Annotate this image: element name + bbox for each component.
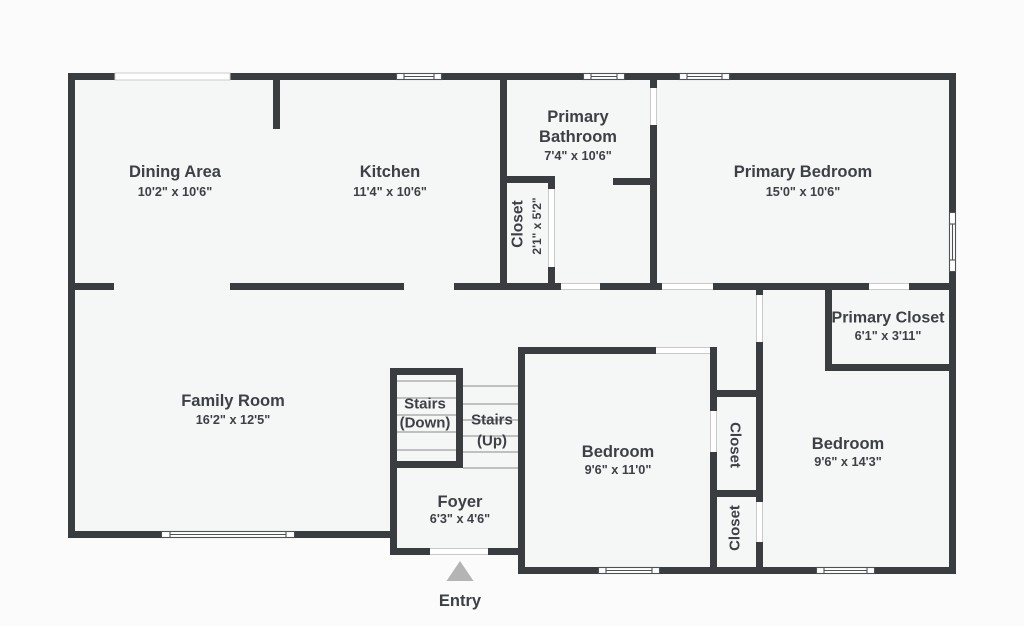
svg-text:6'1" x 3'11": 6'1" x 3'11"	[855, 329, 922, 343]
svg-text:Foyer: Foyer	[438, 493, 484, 511]
svg-text:Closet: Closet	[727, 505, 744, 551]
svg-text:Bedroom: Bedroom	[812, 435, 884, 453]
svg-text:16'2" x 12'5": 16'2" x 12'5"	[196, 413, 271, 427]
svg-text:Kitchen: Kitchen	[360, 163, 421, 181]
svg-text:Stairs: Stairs	[471, 412, 513, 429]
svg-text:15'0" x 10'6": 15'0" x 10'6"	[766, 185, 841, 199]
svg-text:9'6" x 11'0": 9'6" x 11'0"	[585, 463, 652, 477]
svg-text:9'6" x 14'3": 9'6" x 14'3"	[814, 455, 881, 469]
svg-text:(Up): (Up)	[477, 433, 507, 450]
svg-text:Entry: Entry	[439, 592, 482, 610]
svg-text:Bathroom: Bathroom	[539, 128, 617, 146]
svg-text:10'2" x 10'6": 10'2" x 10'6"	[138, 185, 213, 199]
svg-text:11'4" x 10'6": 11'4" x 10'6"	[353, 185, 427, 199]
svg-text:Family Room: Family Room	[181, 392, 285, 410]
svg-text:7'4" x 10'6": 7'4" x 10'6"	[544, 149, 611, 163]
svg-text:Stairs: Stairs	[404, 396, 446, 413]
svg-text:Primary: Primary	[547, 108, 609, 126]
svg-text:6'3" x 4'6": 6'3" x 4'6"	[430, 512, 490, 526]
svg-text:Bedroom: Bedroom	[582, 443, 654, 461]
svg-text:(Down): (Down)	[400, 415, 451, 432]
svg-text:Closet: Closet	[727, 422, 744, 468]
svg-text:Primary Bedroom: Primary Bedroom	[734, 163, 872, 181]
svg-text:Dining Area: Dining Area	[129, 163, 222, 181]
svg-text:2'1" x 5'2": 2'1" x 5'2"	[530, 197, 544, 254]
svg-text:Primary Closet: Primary Closet	[832, 310, 946, 327]
svg-text:Closet: Closet	[510, 200, 527, 247]
